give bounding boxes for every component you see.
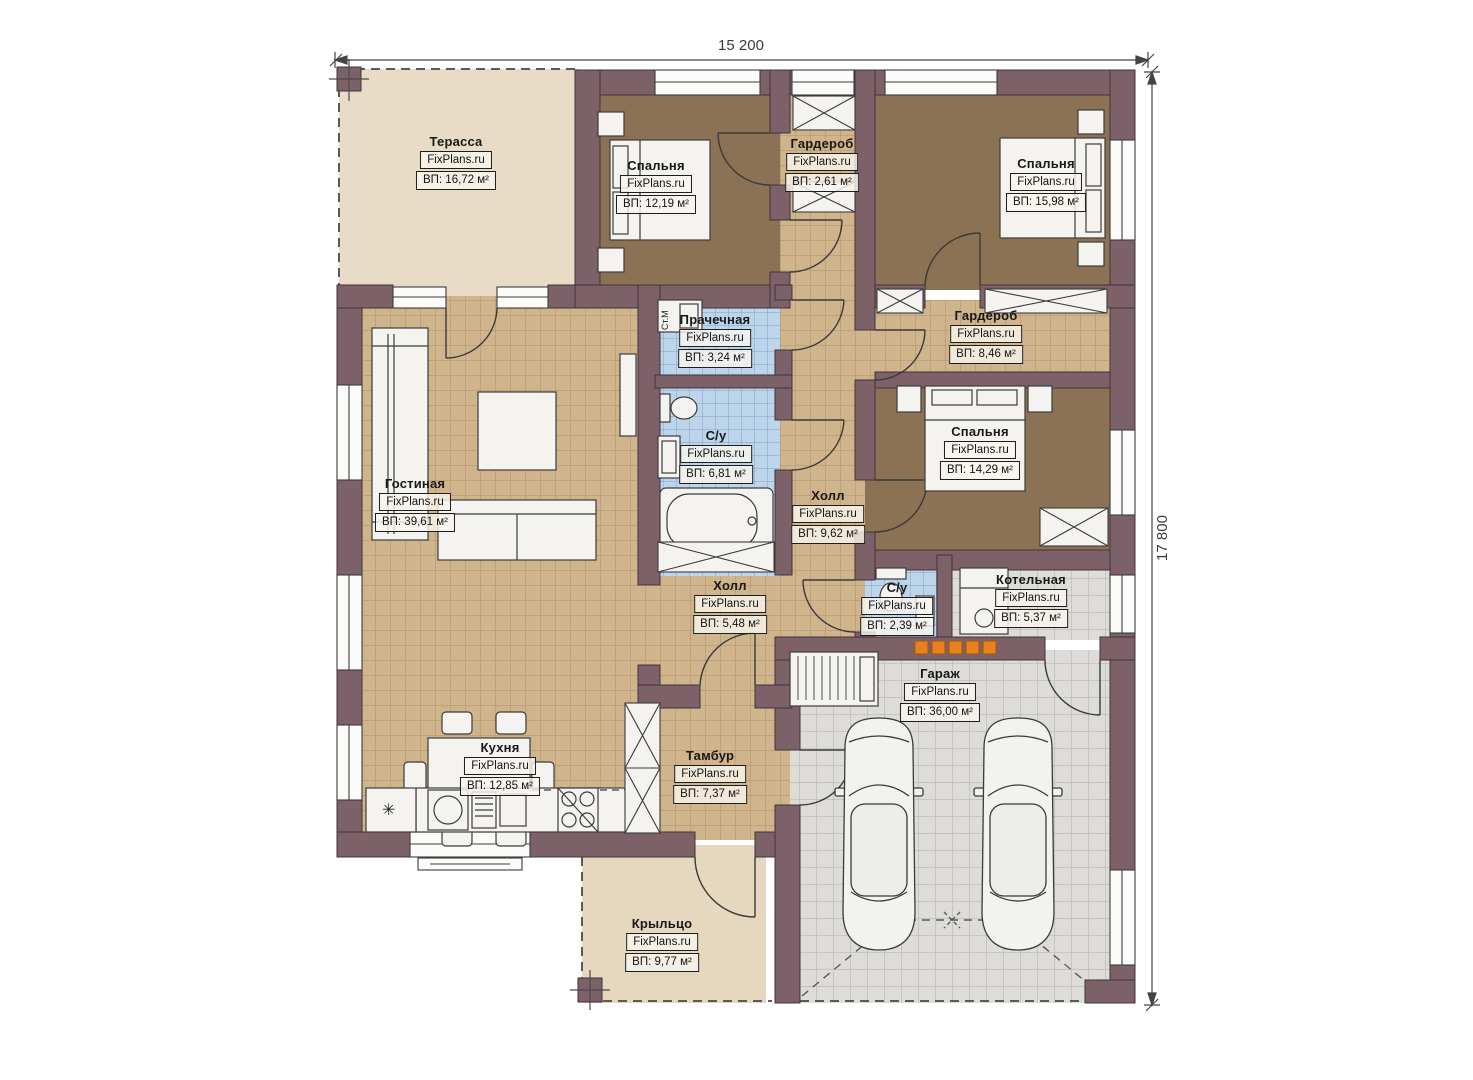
- vent-4: [966, 641, 979, 654]
- window-west-living-2: [337, 575, 362, 670]
- room-area: ВП: 2,61 м²: [785, 173, 859, 191]
- window-north-wardrobe1: [792, 70, 854, 95]
- wall-hall1-east-b: [855, 380, 875, 480]
- wall-bath2-boiler-divider: [937, 555, 952, 640]
- room-label-boiler: Котельная FixPlans.ru ВП: 5,37 м²: [994, 572, 1068, 628]
- wall-living-east-a: [638, 285, 660, 585]
- wall-garage-north-b: [1100, 637, 1135, 660]
- wall-south-1: [337, 832, 410, 857]
- room-name: Прачечная: [680, 312, 751, 327]
- wall-terrace-east: [575, 70, 600, 285]
- window-east-bedroom2: [1110, 140, 1135, 240]
- room-name: Спальня: [951, 424, 1009, 439]
- room-area: ВП: 15,98 м²: [1006, 193, 1086, 211]
- floor-plan: Ст.М 15 200 17 800 Терасса FixPlans.ru В…: [0, 0, 1473, 1080]
- dimension-height-label: 17 800: [1154, 515, 1171, 561]
- cabinet-wardrobe1-top: [793, 96, 855, 130]
- room-label-porch: Крыльцо FixPlans.ru ВП: 9,77 м²: [625, 916, 699, 972]
- wall-garage-south-stub: [1085, 980, 1135, 1003]
- room-label-bedroom-1: Спальня FixPlans.ru ВП: 12,19 м²: [616, 158, 696, 214]
- room-brand: FixPlans.ru: [694, 595, 766, 613]
- wall-garage-west-b: [775, 805, 800, 1003]
- room-name: Гостиная: [385, 476, 445, 491]
- room-area: ВП: 14,29 м²: [940, 461, 1020, 479]
- floor-plan-svg: Ст.М 15 200 17 800: [0, 0, 1473, 1080]
- room-area: ВП: 2,39 м²: [860, 617, 934, 635]
- window-east-garage: [1110, 870, 1135, 965]
- room-brand: FixPlans.ru: [995, 589, 1067, 607]
- sink-bathroom1: [658, 436, 680, 478]
- stove: [558, 788, 598, 832]
- room-brand: FixPlans.ru: [679, 329, 751, 347]
- ventilation-shaft: [625, 703, 660, 833]
- room-area: ВП: 6,81 м²: [679, 465, 753, 483]
- window-west-kitchen: [337, 725, 362, 800]
- room-name: С/у: [706, 428, 727, 443]
- cabinet-wardrobe2-left: [877, 289, 923, 313]
- room-area: ВП: 5,37 м²: [994, 609, 1068, 627]
- cabinet-hall2: [658, 542, 774, 572]
- room-area: ВП: 3,24 м²: [678, 349, 752, 367]
- kitchen-sink: [428, 790, 468, 830]
- room-label-garage: Гараж FixPlans.ru ВП: 36,00 м²: [900, 666, 980, 722]
- sofa-horizontal: [438, 500, 596, 560]
- room-brand: FixPlans.ru: [379, 493, 451, 511]
- room-label-bedroom-3: Спальня FixPlans.ru ВП: 14,29 м²: [940, 424, 1020, 480]
- room-area: ВП: 5,48 м²: [693, 615, 767, 633]
- room-label-kitchen: Кухня FixPlans.ru ВП: 12,85 м²: [460, 740, 540, 796]
- garage-vents: [915, 641, 996, 654]
- room-name: С/у: [887, 580, 908, 595]
- dimension-width-label: 15 200: [718, 37, 764, 54]
- room-label-hall-2: Холл FixPlans.ru ВП: 5,48 м²: [693, 578, 767, 634]
- room-brand: FixPlans.ru: [1010, 173, 1082, 191]
- vent-5: [983, 641, 996, 654]
- room-label-terrace: Терасса FixPlans.ru ВП: 16,72 м²: [416, 134, 496, 190]
- vent-2: [932, 641, 945, 654]
- wall-hall2-vestibule-b: [755, 685, 792, 708]
- coffee-table: [478, 392, 556, 470]
- room-label-hall-1: Холл FixPlans.ru ВП: 9,62 м²: [791, 488, 865, 544]
- room-name: Гардероб: [954, 308, 1017, 323]
- room-label-wardrobe-1: Гардероб FixPlans.ru ВП: 2,61 м²: [785, 136, 859, 192]
- room-area: ВП: 12,19 м²: [616, 195, 696, 213]
- room-brand: FixPlans.ru: [626, 933, 698, 951]
- window-north-bedroom2: [885, 70, 997, 95]
- wall-terrace-south-a: [337, 285, 393, 308]
- room-name: Холл: [811, 488, 844, 503]
- room-label-living: Гостиная FixPlans.ru ВП: 39,61 м²: [375, 476, 455, 532]
- room-area: ВП: 36,00 м²: [900, 703, 980, 721]
- dimension-right: 17 800: [1144, 66, 1171, 1011]
- room-name: Крыльцо: [632, 916, 693, 931]
- room-name: Холл: [713, 578, 746, 593]
- room-brand: FixPlans.ru: [792, 505, 864, 523]
- room-brand: FixPlans.ru: [680, 445, 752, 463]
- vent-3: [949, 641, 962, 654]
- room-label-vestibule: Тамбур FixPlans.ru ВП: 7,37 м²: [673, 748, 747, 804]
- room-label-bedroom-2: Спальня FixPlans.ru ВП: 15,98 м²: [1006, 156, 1086, 212]
- room-brand: FixPlans.ru: [786, 153, 858, 171]
- room-brand: FixPlans.ru: [674, 765, 746, 783]
- room-name: Спальня: [627, 158, 685, 173]
- room-name: Котельная: [996, 572, 1066, 587]
- cabinet-bedroom3: [1040, 508, 1108, 546]
- room-brand: FixPlans.ru: [620, 175, 692, 193]
- room-area: ВП: 39,61 м²: [375, 513, 455, 531]
- room-name: Тамбур: [686, 748, 734, 763]
- wall-bedroom3-south: [875, 550, 1110, 570]
- car-left: [835, 718, 923, 950]
- wall-laundry-bath-divider: [655, 375, 792, 388]
- room-brand: FixPlans.ru: [950, 325, 1022, 343]
- room-name: Гараж: [920, 666, 960, 681]
- room-area: ВП: 12,85 м²: [460, 777, 540, 795]
- room-name: Спальня: [1017, 156, 1075, 171]
- fridge-snowflake-icon: ✳: [382, 800, 395, 820]
- room-brand: FixPlans.ru: [464, 757, 536, 775]
- wall-hall1-west-a: [775, 285, 792, 300]
- wall-bedroom1-east-a: [770, 70, 790, 133]
- room-brand: FixPlans.ru: [904, 683, 976, 701]
- window-east-bedroom3: [1110, 430, 1135, 515]
- room-name: Терасса: [430, 134, 483, 149]
- wall-south-2: [530, 832, 695, 857]
- room-area: ВП: 8,46 м²: [949, 345, 1023, 363]
- room-label-bathroom-2: С/у FixPlans.ru ВП: 2,39 м²: [860, 580, 934, 636]
- room-name: Гардероб: [790, 136, 853, 151]
- wall-hall1-east-a: [855, 70, 875, 330]
- washing-machine-label: Ст.М: [660, 310, 670, 330]
- room-area: ВП: 7,37 м²: [673, 785, 747, 803]
- wall-hall1-west-c: [775, 470, 792, 575]
- vent-1: [915, 641, 928, 654]
- dimension-top: 15 200: [330, 37, 1154, 68]
- window-north-bedroom1: [655, 70, 760, 95]
- room-brand: FixPlans.ru: [944, 441, 1016, 459]
- room-label-bathroom-1: С/у FixPlans.ru ВП: 6,81 м²: [679, 428, 753, 484]
- room-label-laundry: Прачечная FixPlans.ru ВП: 3,24 м²: [678, 312, 752, 368]
- window-east-boiler: [1110, 575, 1135, 633]
- window-terrace-2: [497, 287, 548, 308]
- room-area: ВП: 9,62 м²: [791, 525, 865, 543]
- tv-stand: [620, 354, 636, 436]
- window-west-living-1: [337, 385, 362, 480]
- garage-workbench: [790, 652, 878, 706]
- room-area: ВП: 9,77 м²: [625, 953, 699, 971]
- room-label-wardrobe-2: Гардероб FixPlans.ru ВП: 8,46 м²: [949, 308, 1023, 364]
- room-brand: FixPlans.ru: [861, 597, 933, 615]
- room-area: ВП: 16,72 м²: [416, 171, 496, 189]
- room-name: Кухня: [480, 740, 519, 755]
- room-brand: FixPlans.ru: [420, 151, 492, 169]
- car-right: [974, 718, 1062, 950]
- window-terrace-1: [393, 287, 446, 308]
